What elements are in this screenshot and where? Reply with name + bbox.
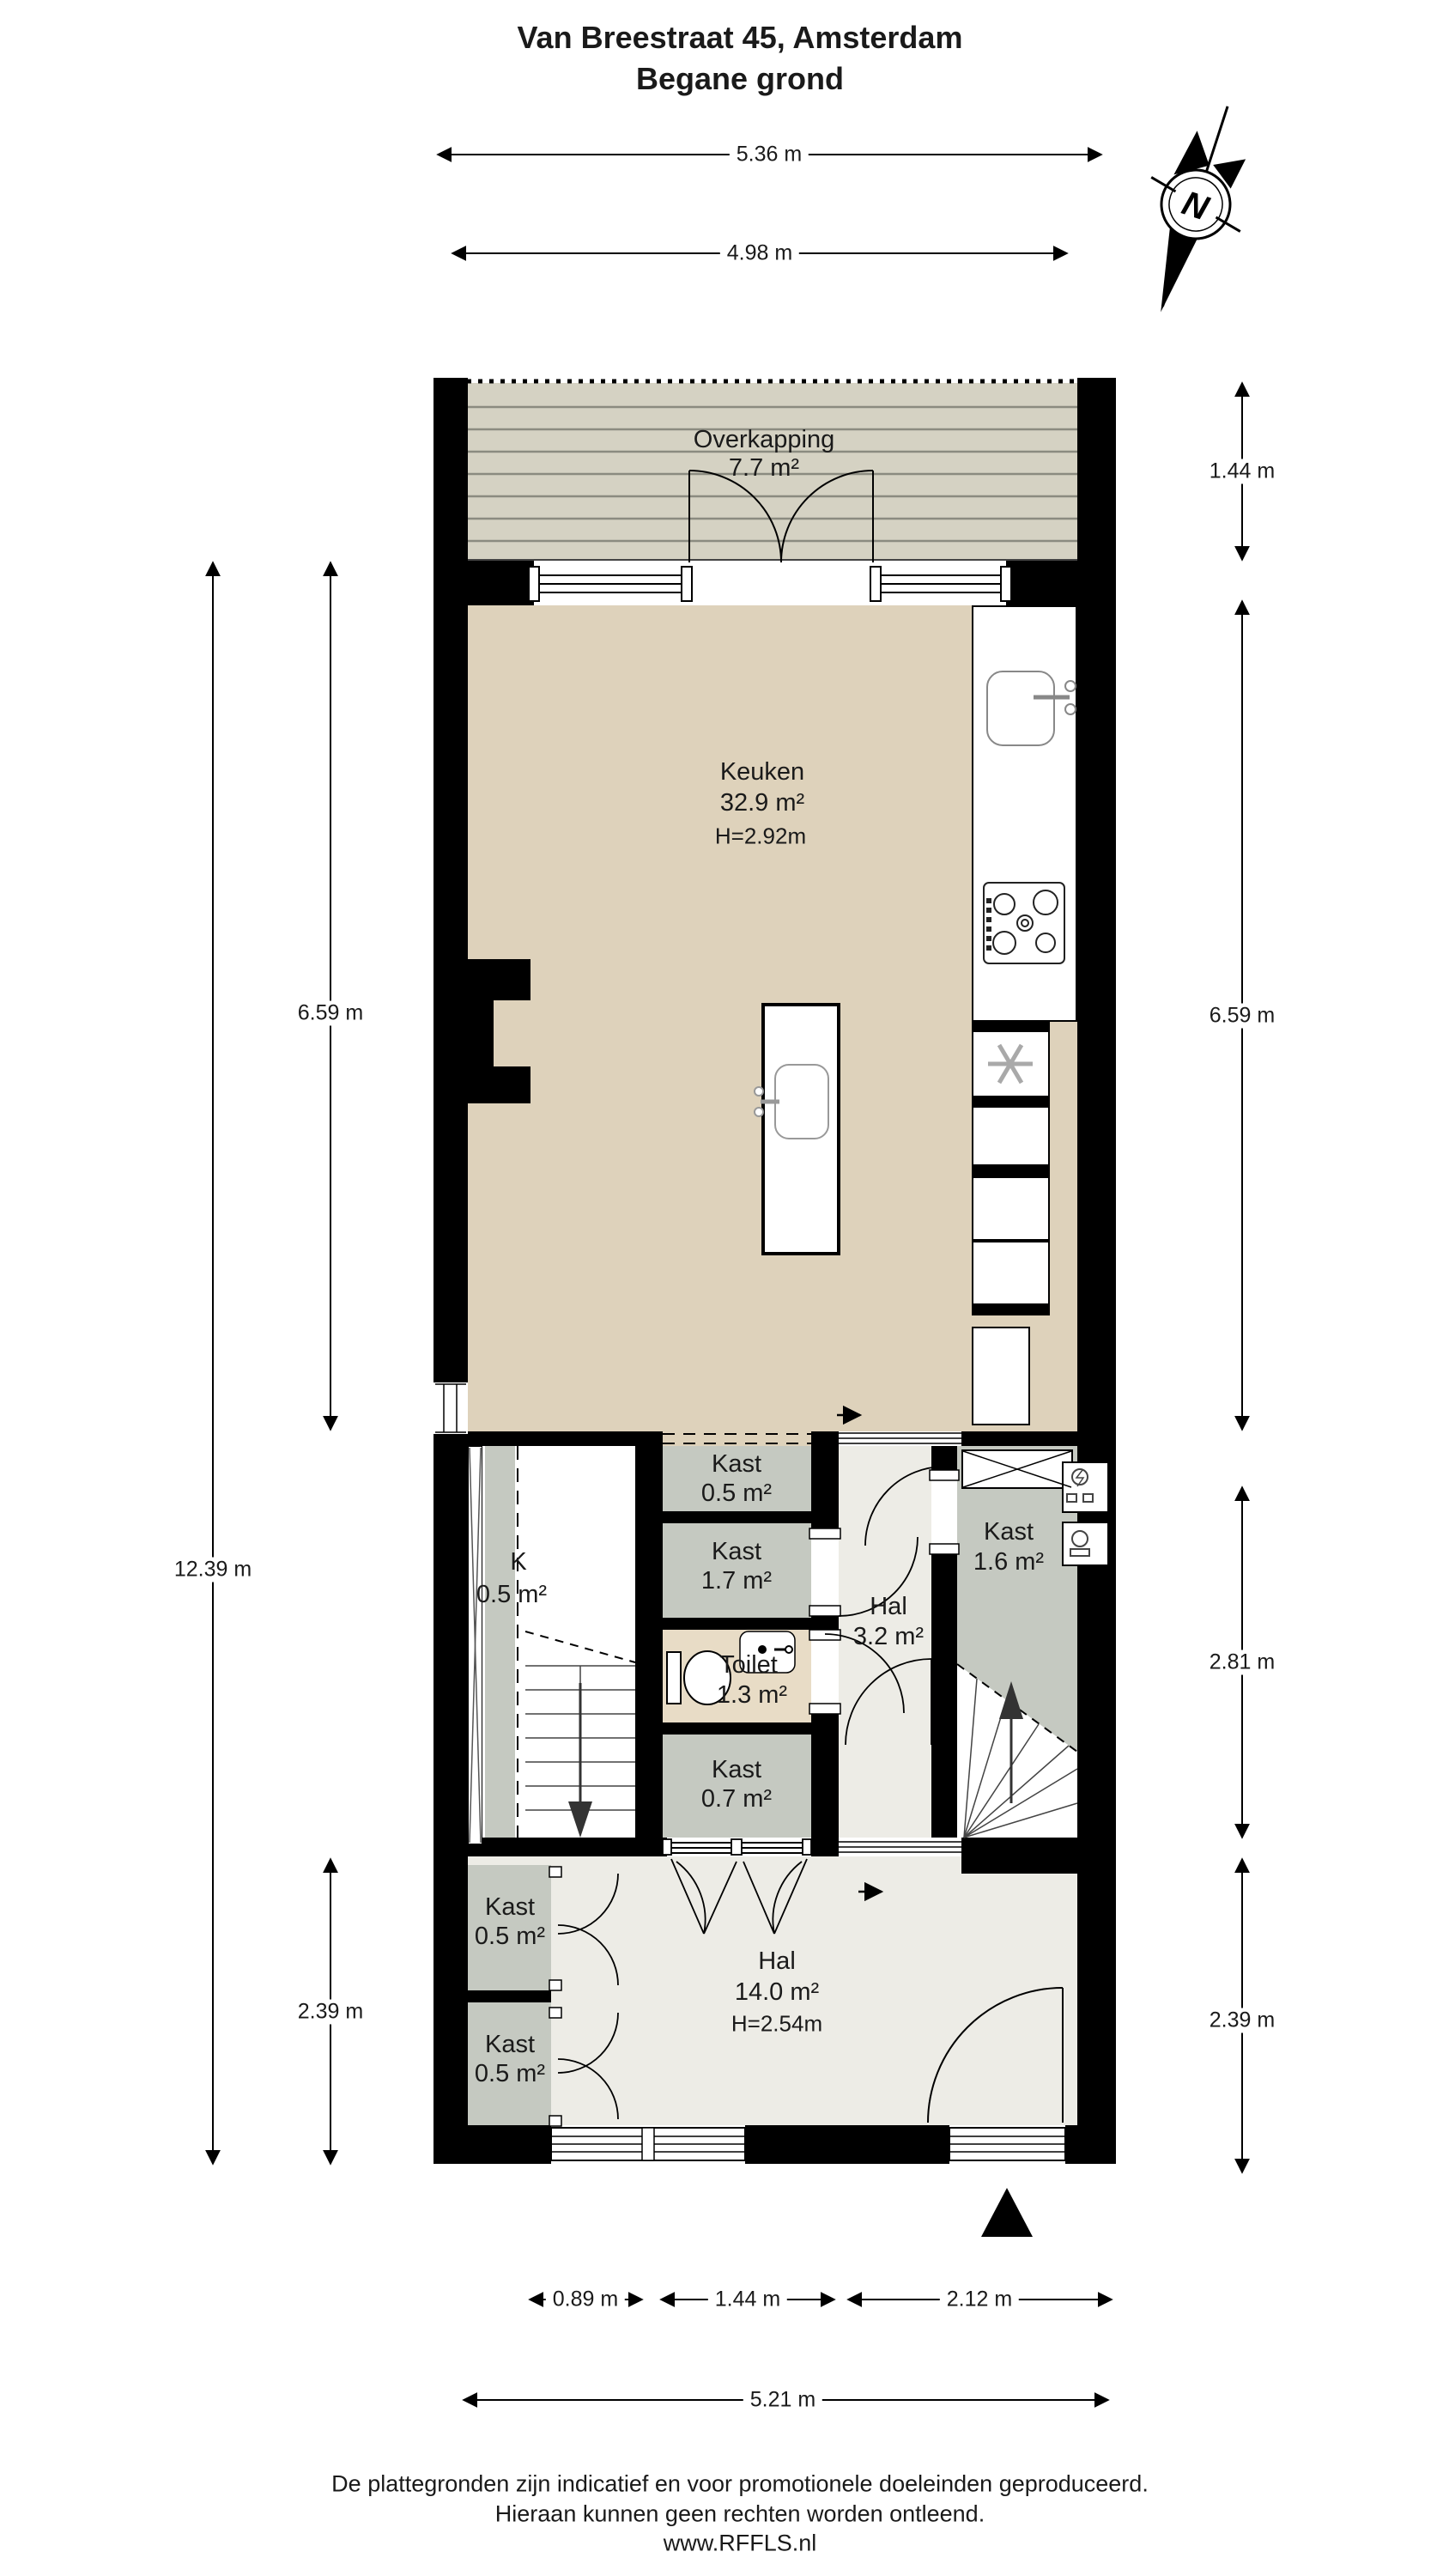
kast-links-floor (485, 1446, 515, 1844)
kast-groot-name: Kast (712, 1539, 761, 1566)
stairs-down (525, 1631, 635, 1838)
wall-kast-top-zuid (663, 1511, 811, 1523)
wall-zuid-2 (745, 2125, 949, 2164)
window-left-gap (433, 1382, 468, 1434)
wall-zuid-3 (1065, 2125, 1116, 2164)
stairs-up (957, 1664, 1077, 1838)
dim-right-kitchen: 6.59 m (1203, 1004, 1282, 1029)
dim-right-hal: 2.39 m (1203, 2008, 1282, 2033)
toilet-name: Toilet (719, 1652, 778, 1680)
dim-right-overkapping: 1.44 m (1203, 459, 1282, 484)
appliance-box-4 (972, 1327, 1030, 1425)
wall-keuken-noord-rechts (1006, 560, 1116, 605)
freezer-box (972, 1030, 1050, 1097)
dim-left-hal: 2.39 m (291, 2000, 370, 2025)
wall-keuken-zuid-1 (468, 1431, 663, 1446)
counter-gap-4 (972, 1305, 1050, 1315)
wall-kast-groot-zuid (663, 1618, 811, 1630)
dim-bottom-kast: 0.89 m (546, 2287, 625, 2312)
dim-top-outer: 5.36 m (730, 143, 809, 167)
kast-groot-area: 1.7 m² (701, 1568, 772, 1595)
kast-hal1-area: 0.5 m² (475, 1923, 545, 1951)
hal-beneden-name: Hal (758, 1948, 796, 1976)
dim-bottom-total: 5.21 m (743, 2388, 822, 2413)
footer-line1: De plattegronden zijn indicatief en voor… (331, 2471, 1149, 2498)
dim-bottom-hal: 2.12 m (940, 2287, 1019, 2312)
page-title-line2: Begane grond (636, 61, 844, 97)
wall-left-lower (433, 1434, 468, 2164)
floorplan-page: N Van Breestraat 45, Amsterdam Begane gr… (0, 0, 1449, 2576)
kast-links-area: 0.5 m² (476, 1582, 547, 1609)
entrance-arrow-icon (981, 2188, 1033, 2237)
hal-name: Hal (870, 1594, 907, 1621)
void-box (961, 1449, 1073, 1489)
wall-hal-oost-a (931, 1446, 957, 1477)
kast-hal2-name: Kast (485, 2032, 535, 2059)
keuken-name: Keuken (720, 759, 804, 787)
shaft-box (468, 1446, 482, 1844)
keuken-opening-floor (663, 1431, 811, 1446)
wall-hal-west-a (811, 1446, 839, 1535)
meter-box-1 (1062, 1461, 1109, 1513)
wall-midden-zuid-2 (811, 1838, 839, 1856)
wall-trap-kast (635, 1446, 663, 1838)
kast-top-name: Kast (712, 1451, 761, 1479)
dim-right-middle: 2.81 m (1203, 1650, 1282, 1675)
kast-links-name: K (510, 1549, 526, 1577)
appliance-box-3 (972, 1241, 1050, 1305)
appliance-box-1 (972, 1106, 1050, 1166)
dim-left-total: 12.39 m (167, 1558, 258, 1583)
kast-meter-area: 1.6 m² (973, 1549, 1044, 1577)
wall-keuken-noord-links (433, 560, 534, 605)
wall-left-upper (433, 378, 468, 1382)
toilet-area: 1.3 m² (717, 1682, 787, 1710)
keuken-area: 32.9 m² (720, 790, 804, 817)
keuken-window-band (529, 567, 1011, 601)
kast-onder-area: 0.7 m² (701, 1786, 772, 1814)
kast-onder-name: Kast (712, 1757, 761, 1784)
chimney-notch (494, 1000, 530, 1066)
wall-toilet-zuid (663, 1722, 811, 1735)
overkapping-area: 7.7 m² (729, 455, 799, 483)
hal-beneden-area: 14.0 m² (735, 1979, 819, 2007)
dim-top-inner: 4.98 m (720, 241, 799, 266)
wall-hal-west-b (811, 1616, 839, 1636)
hal-beneden-height: H=2.54m (731, 2012, 822, 2037)
wall-hal-west-c (811, 1713, 839, 1838)
kitchen-counter (972, 605, 1077, 1022)
wall-trap-stub (961, 1838, 1077, 1874)
kast-top-area: 0.5 m² (701, 1480, 772, 1508)
compass-rose-icon: N (1113, 91, 1276, 328)
appliance-box-2 (972, 1176, 1050, 1241)
counter-gap-2 (972, 1097, 1050, 1106)
overkapping-name: Overkapping (694, 427, 834, 454)
footer-line2: Hieraan kunnen geen rechten worden ontle… (495, 2501, 985, 2528)
kast-hal2-area: 0.5 m² (475, 2061, 545, 2088)
wall-zuid-1 (433, 2125, 551, 2164)
footer-line3: www.RFFLS.nl (664, 2530, 817, 2557)
railing-hal (839, 1842, 961, 1852)
dim-left-kitchen: 6.59 m (291, 1001, 370, 1026)
wall-hal-oost-b (931, 1546, 957, 1838)
kitchen-island (761, 1003, 840, 1255)
kast-meter-name: Kast (984, 1519, 1034, 1546)
wall-right (1077, 378, 1116, 2164)
wall-kast-hal-tussen (468, 1990, 551, 2002)
wall-keuken-zuid-2 (811, 1431, 839, 1446)
dim-bottom-stair: 1.44 m (708, 2287, 787, 2312)
compass-label: N (1178, 185, 1214, 228)
keuken-height: H=2.92m (715, 824, 806, 849)
page-title-line1: Van Breestraat 45, Amsterdam (518, 20, 963, 56)
counter-gap-1 (972, 1022, 1050, 1030)
wall-midden-zuid-1 (468, 1838, 667, 1856)
railing-keuken (839, 1433, 961, 1443)
stairs-down-arrow-icon (568, 1683, 592, 1838)
stairs-up-arrow-icon (999, 1681, 1023, 1803)
meter-box-2 (1062, 1522, 1109, 1566)
wall-keuken-zuid-3 (961, 1431, 1077, 1446)
kast-hal1-name: Kast (485, 1894, 535, 1922)
counter-gap-3 (972, 1166, 1050, 1176)
hal-area: 3.2 m² (853, 1624, 924, 1651)
